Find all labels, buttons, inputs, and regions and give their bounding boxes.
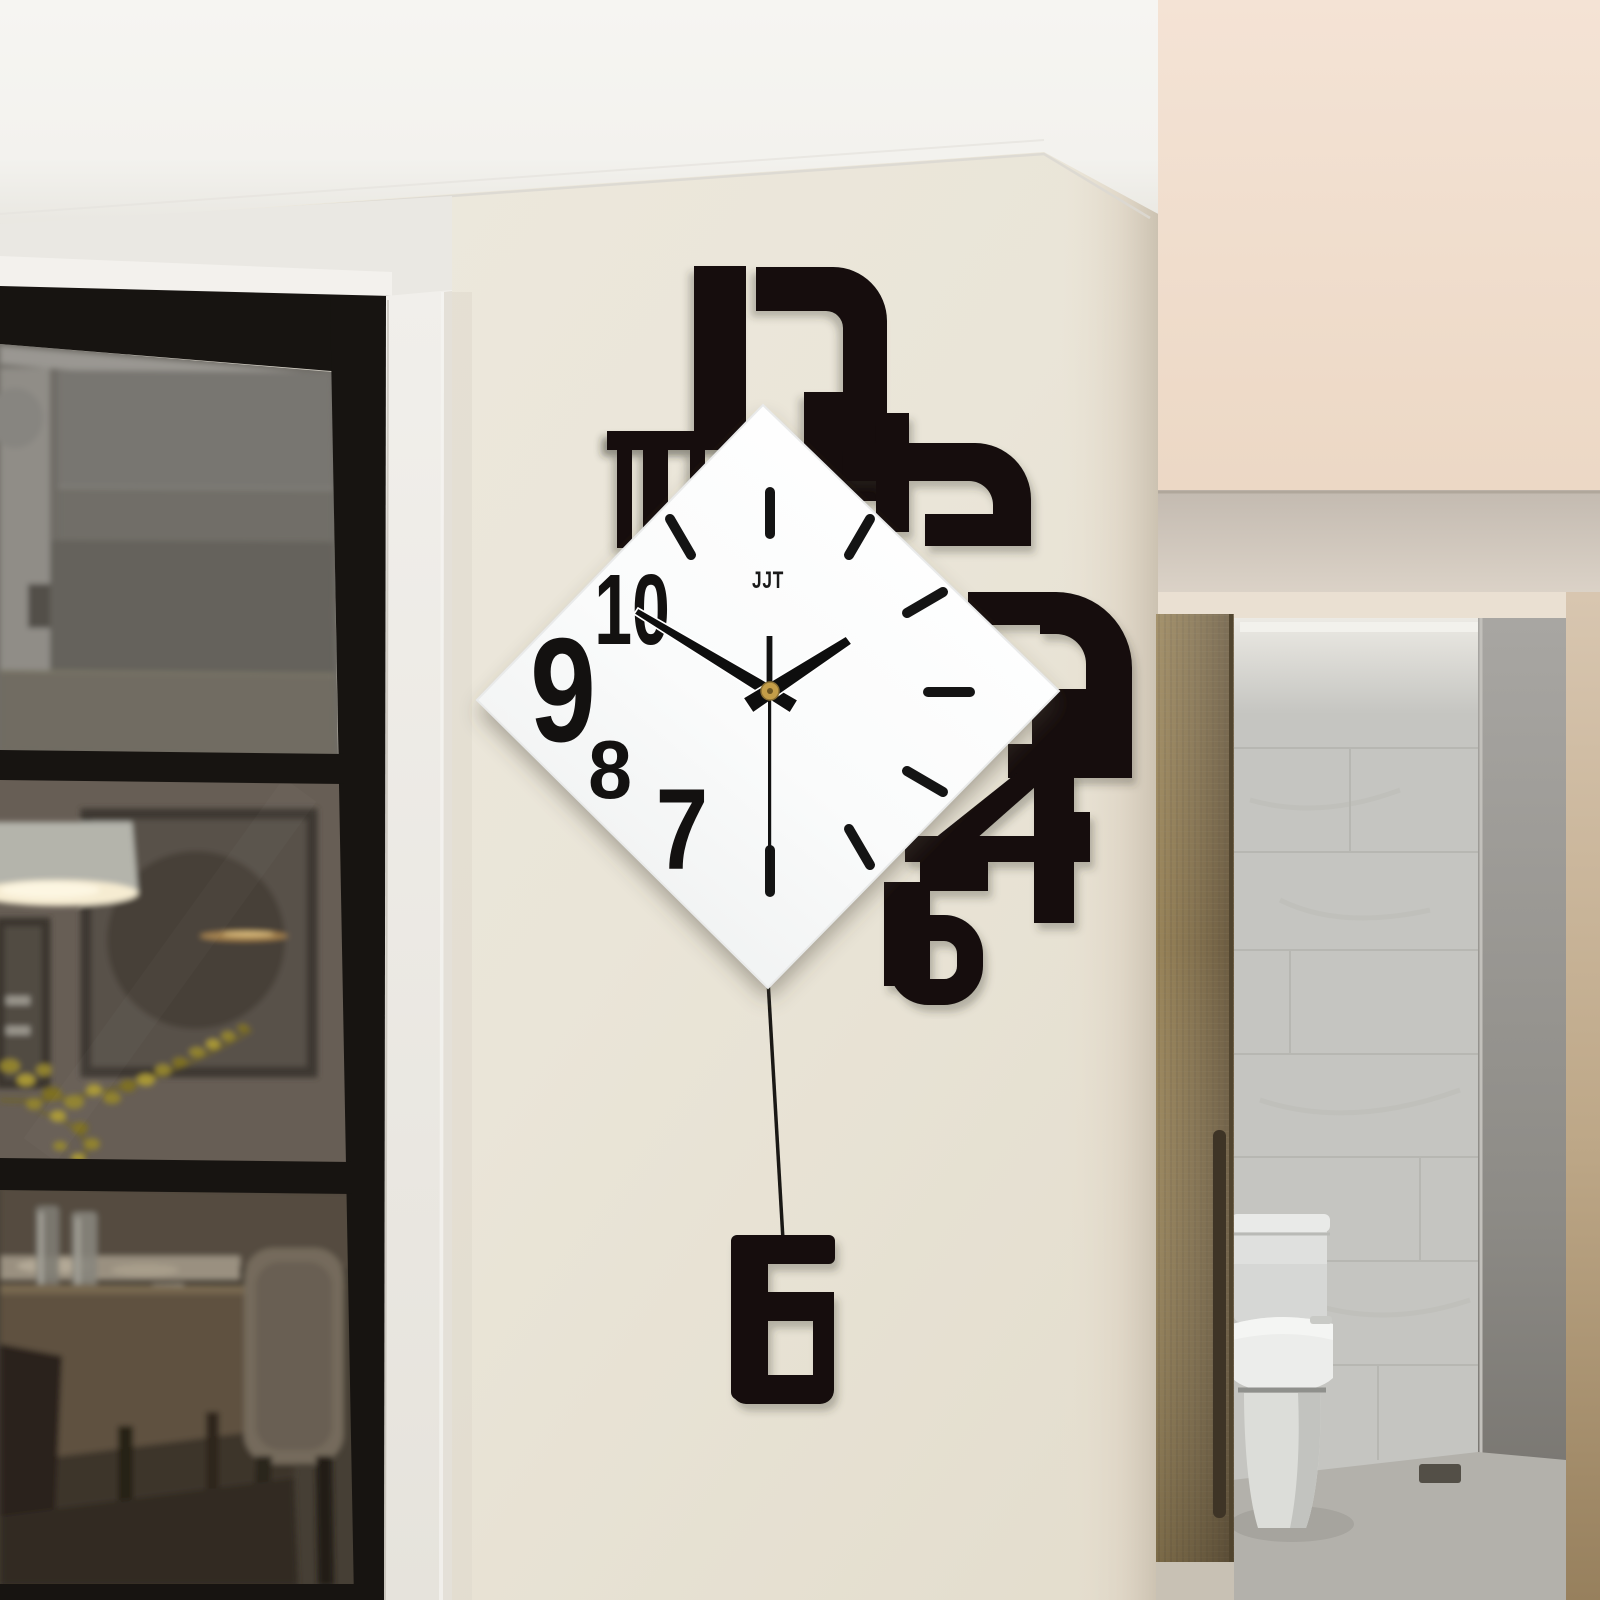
- svg-text:8: 8: [588, 724, 632, 816]
- svg-text:7: 7: [656, 766, 708, 894]
- svg-text:JJT: JJT: [752, 567, 784, 593]
- svg-text:9: 9: [530, 608, 596, 773]
- svg-text:10: 10: [594, 555, 670, 666]
